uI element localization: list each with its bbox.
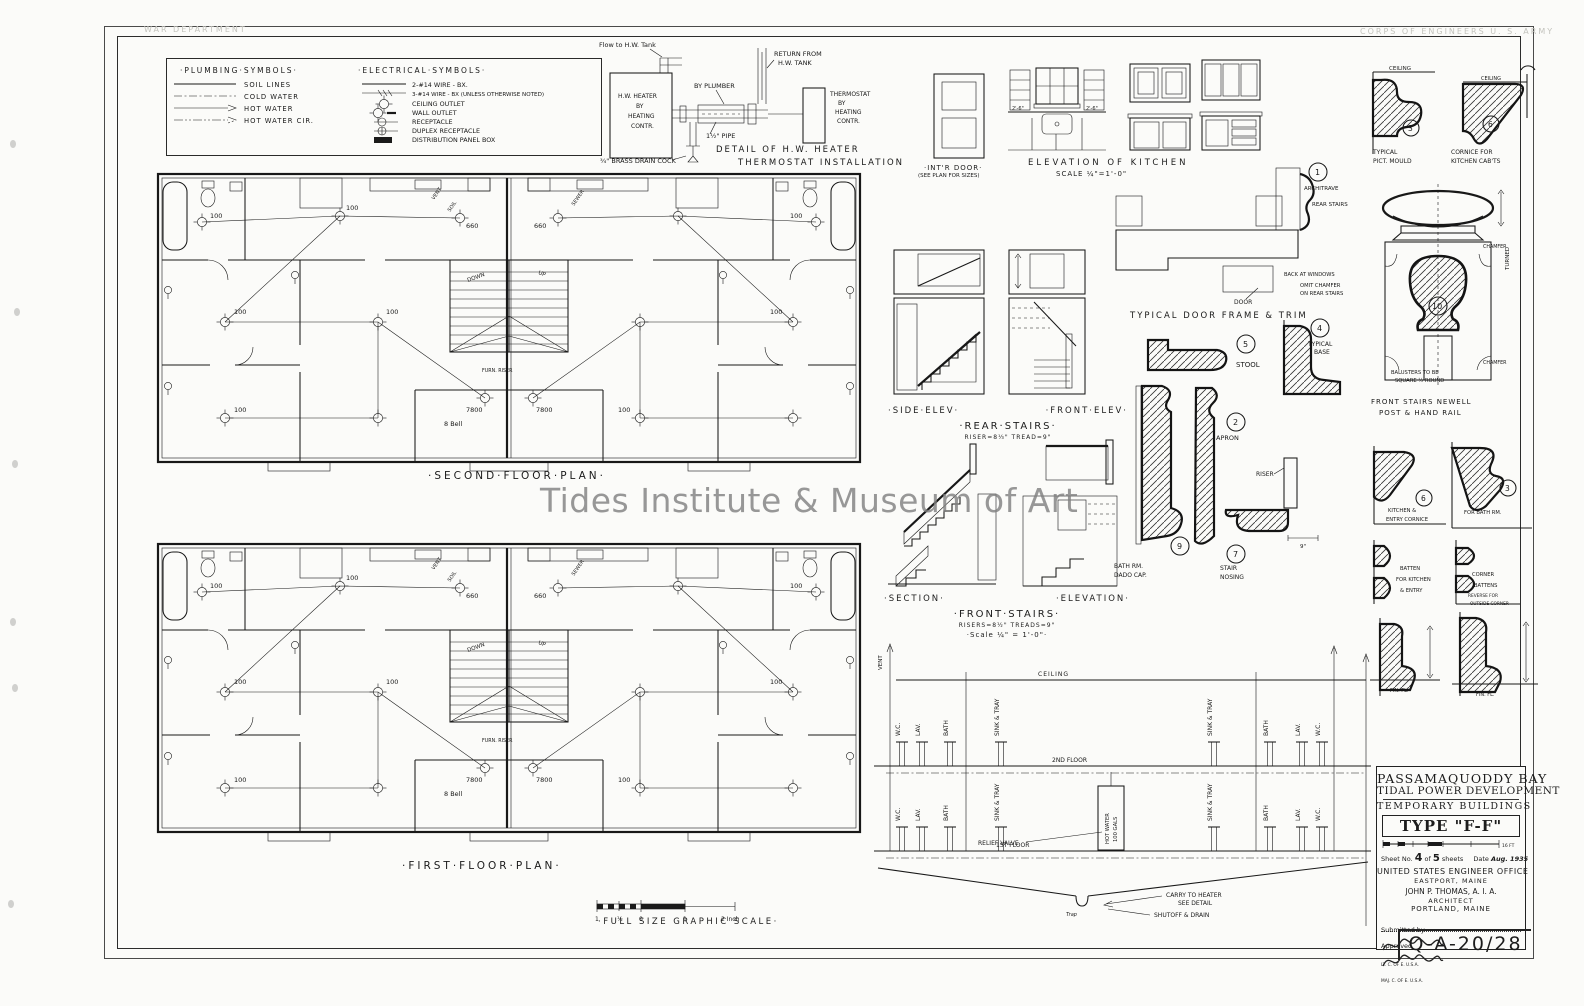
drawing-sheet: WAR DEPARTMENT CORPS OF ENGINEERS U. S. … bbox=[0, 0, 1584, 1006]
outlet-label: 100 bbox=[234, 776, 246, 784]
fixture-label-wc: W.C. bbox=[1315, 808, 1322, 821]
title-block: PASSAMAQUODDY BAY TIDAL POWER DEVELOPMEN… bbox=[1376, 766, 1526, 950]
trap-label: Trap bbox=[1066, 912, 1077, 918]
tank-label-1: HOT WATER bbox=[1105, 813, 1111, 844]
stairs-up-label: UP bbox=[537, 270, 547, 278]
architect-name: JOHN P. THOMAS, A. I. A. bbox=[1377, 887, 1525, 896]
balusters-note-2: SQUARE ½ ROUND bbox=[1395, 377, 1444, 384]
fixture-label-bath: BATH bbox=[1263, 720, 1270, 736]
shutoff-drain-label: SHUTOFF & DRAIN bbox=[1154, 912, 1209, 919]
pict-mould-1: TYPICAL bbox=[1372, 149, 1398, 156]
plumbing-symbols-title: ·PLUMBING·SYMBOLS· bbox=[180, 66, 298, 75]
outlet-label: 100 bbox=[210, 212, 222, 220]
rear-stairs-side-elev bbox=[888, 236, 990, 398]
outlet-label: 7800 bbox=[536, 406, 553, 414]
ceiling-label-cornice: CEILING bbox=[1481, 76, 1501, 82]
pipe-sewer-label: SEWER bbox=[571, 559, 586, 578]
pipe-soil-label: SOIL bbox=[447, 200, 459, 213]
back-at-windows-note: BACK AT WINDOWS bbox=[1284, 272, 1335, 278]
riser-2nd-floor-label: 2ND FLOOR bbox=[1052, 757, 1087, 764]
corner-battens-1: CORNER bbox=[1472, 572, 1494, 578]
fixture-label-bath: BATH bbox=[1263, 805, 1270, 821]
outlet-label: 100 bbox=[234, 406, 246, 414]
mould-details-top: CEILING 3 TYPICAL PICT. MOULD CEILING 6 … bbox=[1363, 58, 1540, 170]
stairs-up-label: UP bbox=[537, 640, 547, 648]
detail-1-number: 1 bbox=[1315, 168, 1320, 177]
thermo-4: CONTR. bbox=[837, 118, 860, 125]
project-name-2: TIDAL POWER DEVELOPMENT bbox=[1377, 785, 1525, 797]
corps-engineers-stamp: CORPS OF ENGINEERS U. S. ARMY bbox=[1360, 27, 1554, 36]
legend-duplex: DUPLEX RECEPTACLE bbox=[412, 127, 480, 135]
date-value: Aug. 1935 bbox=[1491, 855, 1528, 863]
fixture-label-bath: BATH bbox=[943, 720, 950, 736]
office-line-1: UNITED STATES ENGINEER OFFICE bbox=[1377, 867, 1525, 876]
bell-label: 8 Bell bbox=[444, 790, 462, 798]
margin-speck bbox=[8, 900, 14, 908]
outlet-label: 100 bbox=[210, 582, 222, 590]
carry-to-heater-1: CARRY TO HEATER bbox=[1166, 892, 1222, 899]
sheet-code: Q-A-20/28 bbox=[1398, 929, 1531, 960]
outlet-label: 660 bbox=[534, 222, 546, 230]
heater-caption-1: DETAIL OF H.W. HEATER bbox=[716, 145, 860, 155]
riser-vent-label: VENT bbox=[878, 655, 884, 670]
front-stairs-caption: ·FRONT·STAIRS· bbox=[884, 609, 1130, 620]
pipe-soil-label: SOIL bbox=[447, 570, 459, 583]
relief-valve-label: RELIEF VALVE bbox=[978, 840, 1019, 847]
dado-cap-2: DADO CAP. bbox=[1114, 572, 1147, 579]
first-floor-plan-caption: ·FIRST·FLOOR·PLAN· bbox=[402, 860, 562, 872]
fixture-label-lav: LAV. bbox=[1295, 723, 1302, 736]
heater-box-2: BY bbox=[636, 103, 644, 110]
outlet-label: 100 bbox=[790, 582, 802, 590]
detail-3b-number: 3 bbox=[1505, 484, 1510, 493]
tank-label-2: 100 GALS bbox=[1113, 817, 1119, 842]
margin-speck bbox=[12, 684, 18, 692]
rear-stairs-front-elev bbox=[1004, 236, 1092, 398]
architrave-label: ARCHITRAVE bbox=[1304, 186, 1339, 192]
outlet-label: 100 bbox=[386, 678, 398, 686]
stair-nosing-2: NOSING bbox=[1220, 574, 1244, 581]
stool-label: STOOL bbox=[1236, 361, 1260, 369]
office-line-2: EASTPORT, MAINE bbox=[1377, 877, 1525, 885]
subtitle: TEMPORARY BUILDINGS bbox=[1377, 801, 1525, 812]
dado-cap-1: BATH RM. bbox=[1114, 563, 1143, 570]
sheet-label: Sheet No. bbox=[1381, 855, 1413, 863]
batten-3: & ENTRY bbox=[1400, 588, 1423, 594]
second-floor-plan-drawing: 100 100 100 100 100 100 100 100 660 660 … bbox=[150, 160, 868, 472]
titleblock-scale-bar: 16 FT bbox=[1381, 839, 1521, 849]
turned-label: TURNED bbox=[1505, 247, 1511, 271]
door-caption-2: (SEE PLAN FOR SIZES) bbox=[918, 173, 980, 179]
outlet-label: 100 bbox=[618, 406, 630, 414]
furn-riser-label: FURN. RISER bbox=[482, 738, 513, 744]
batten-1: BATTEN bbox=[1400, 566, 1420, 572]
kitchen-dim-left: 2'-6" bbox=[1012, 106, 1024, 112]
approved-rank: MAJ. C. OF E. U.S.A. bbox=[1381, 979, 1423, 984]
detail-2-number: 2 bbox=[1233, 418, 1238, 427]
stairs-down-label: DOWN bbox=[467, 642, 486, 654]
detail-7-number: 7 bbox=[1233, 550, 1238, 559]
chamfer-label-top: CHAMFER bbox=[1483, 244, 1507, 250]
legend-hot-water-cir: HOT WATER CIR. bbox=[244, 117, 314, 125]
stairs-down-label: DOWN bbox=[467, 272, 486, 284]
stair-nosing-1: STAIR bbox=[1220, 565, 1237, 572]
entry-cornice-2: ENTRY CORNICE bbox=[1386, 517, 1428, 523]
sheet-row: Sheet No. 4 of 5 sheets Date Aug. 1935 bbox=[1381, 851, 1521, 864]
margin-speck bbox=[10, 618, 16, 626]
rear-side-elev-caption: ·SIDE·ELEV· bbox=[888, 406, 959, 416]
heater-return-1: RETURN FROM bbox=[774, 50, 822, 58]
type-designation: TYPE "F-F" bbox=[1382, 815, 1520, 837]
front-stairs-detail: ·SECTION· ·ELEVATION· ·FRONT·STAIRS· RIS… bbox=[884, 436, 1130, 639]
outlet-label: 100 bbox=[770, 678, 782, 686]
legend-soil-lines: SOIL LINES bbox=[244, 81, 291, 89]
heater-box-4: CONTR. bbox=[631, 123, 654, 130]
fixture-label-sink: SINK & TRAY bbox=[994, 698, 1001, 736]
pipe-vent-label: VENT bbox=[431, 556, 444, 571]
cornice-batten-details: 6 KITCHEN & ENTRY CORNICE 3 FOR BATH RM.… bbox=[1360, 428, 1540, 720]
margin-speck bbox=[12, 460, 18, 468]
thermo-1: THERMOSTAT bbox=[829, 91, 871, 98]
fixture-label-sink: SINK & TRAY bbox=[1207, 698, 1214, 736]
pipe-vent-label: VENT bbox=[431, 186, 444, 201]
heater-flow-label: Flow to H.W. Tank bbox=[599, 41, 656, 49]
riser-fixture-labels: W.C. LAV. BATH SINK & TRAY SINK & TRAY B… bbox=[895, 698, 1322, 821]
outlet-label: 100 bbox=[386, 308, 398, 316]
project-name-1: PASSAMAQUODDY BAY bbox=[1377, 771, 1525, 786]
omit-chamfer-1: OMIT CHAMFER bbox=[1300, 283, 1341, 289]
outlet-label: 7800 bbox=[466, 776, 483, 784]
legend-hot-water: HOT WATER bbox=[244, 105, 293, 113]
fin-fl-left: FIN. FL. bbox=[1390, 688, 1409, 694]
detail-3-number: 3 bbox=[1408, 124, 1413, 133]
detail-9-number: 9 bbox=[1177, 542, 1182, 551]
corner-battens-4: OUTSIDE CORNER bbox=[1470, 601, 1509, 607]
newel-caption-2: POST & HAND RAIL bbox=[1379, 409, 1462, 417]
sheet-of: of bbox=[1424, 855, 1430, 863]
thermo-2: BY bbox=[838, 100, 846, 107]
watermark: Tides Institute & Museum of Art bbox=[540, 481, 1078, 520]
date-label: Date bbox=[1473, 855, 1489, 863]
detail-4-number: 4 bbox=[1317, 324, 1322, 333]
electrical-symbols-title: ·ELECTRICAL·SYMBOLS· bbox=[358, 66, 486, 75]
carry-to-heater-2: SEE DETAIL bbox=[1178, 900, 1213, 907]
legend-panel-box: DISTRIBUTION PANEL BOX bbox=[412, 136, 496, 144]
fixture-label-sink: SINK & TRAY bbox=[1207, 783, 1214, 821]
outlet-label: 7800 bbox=[536, 776, 553, 784]
outlet-label: 100 bbox=[790, 212, 802, 220]
graphic-scale-caption: ·FULL SIZE GRAPHIC SCALE· bbox=[598, 917, 779, 927]
outlet-label: 100 bbox=[234, 678, 246, 686]
riser-ceiling-label: CEILING bbox=[1038, 671, 1069, 678]
front-section-caption: ·SECTION· bbox=[884, 594, 945, 604]
plumbing-riser-diagram: CEILING 2ND FLOOR 1ST FLOOR VENT W.C. LA… bbox=[866, 636, 1380, 940]
typical-base-2: BASE bbox=[1314, 349, 1330, 356]
thermo-3: HEATING bbox=[835, 109, 862, 116]
chamfer-label-bottom: CHAMFER bbox=[1483, 360, 1507, 366]
ceiling-label-pict: CEILING bbox=[1389, 66, 1411, 72]
kitchen-cornice-2: KITCHEN CAB'TS bbox=[1451, 158, 1501, 165]
rear-stairs-caption: ·REAR·STAIRS· bbox=[888, 421, 1128, 432]
pipe-sewer-label: SEWER bbox=[571, 189, 586, 208]
fixture-label-wc: W.C. bbox=[895, 808, 902, 821]
bell-label: 8 Bell bbox=[444, 420, 462, 428]
newel-post-detail: 10 TURNED CHAMFER CHAMFER BALUSTERS TO B… bbox=[1363, 178, 1515, 423]
corner-battens-2: BATTENS bbox=[1474, 583, 1497, 589]
legend-wire2: 2-#14 WIRE - BX. bbox=[412, 81, 468, 89]
detail-6-number: 6 bbox=[1488, 120, 1493, 129]
omit-chamfer-2: ON REAR STAIRS bbox=[1300, 291, 1343, 297]
kitchen-elevation-cab2 bbox=[1126, 62, 1194, 152]
rear-stairs-note: REAR STAIRS bbox=[1312, 202, 1348, 208]
sheet-total: 5 bbox=[1433, 853, 1440, 864]
legend-cold-water: COLD WATER bbox=[244, 93, 299, 101]
door-caption-1: ·INT'R DOOR· bbox=[924, 164, 982, 172]
fixture-label-lav: LAV. bbox=[1295, 808, 1302, 821]
heater-box-3: HEATING bbox=[628, 113, 655, 120]
outlet-label: 100 bbox=[346, 204, 358, 212]
legend-wire3: 3-#14 WIRE - BX (UNLESS OTHERWISE NOTED) bbox=[412, 92, 544, 98]
heater-box-1: H.W. HEATER bbox=[618, 93, 657, 100]
fixture-label-wc: W.C. bbox=[1315, 723, 1322, 736]
scale-end-label: 16 FT bbox=[1502, 843, 1515, 849]
kitchen-elevation-cab3 bbox=[1200, 58, 1264, 152]
kitchen-dim-right: 2'-6" bbox=[1086, 106, 1098, 112]
outlet-label: 100 bbox=[346, 574, 358, 582]
kitchen-elevation-sink: 2'-6" 2'-6" bbox=[1008, 66, 1106, 154]
outlet-label: 100 bbox=[770, 308, 782, 316]
outlet-label: 100 bbox=[234, 308, 246, 316]
legend-wall-outlet: WALL OUTLET bbox=[412, 109, 457, 117]
furn-riser-label: FURN. RISER bbox=[482, 368, 513, 374]
fixture-label-sink: SINK & TRAY bbox=[994, 783, 1001, 821]
symbols-legend: ·PLUMBING·SYMBOLS· SOIL LINES COLD WATER… bbox=[166, 58, 602, 156]
margin-speck bbox=[10, 140, 16, 148]
newel-caption-1: FRONT STAIRS NEWELL bbox=[1371, 398, 1472, 406]
batten-2: FOR KITCHEN bbox=[1396, 577, 1431, 583]
typical-base-1: TYPICAL bbox=[1307, 341, 1333, 348]
fixture-label-wc: W.C. bbox=[895, 723, 902, 736]
detail-5-number: 5 bbox=[1243, 340, 1248, 349]
entry-cornice-1: KITCHEN & bbox=[1388, 508, 1416, 514]
outlet-label: 660 bbox=[534, 592, 546, 600]
legend-receptacle: RECEPTACLE bbox=[412, 118, 453, 126]
trim-details: 1 ARCHITRAVE REAR STAIRS BACK AT WINDOWS… bbox=[1108, 158, 1360, 628]
outlet-label: 660 bbox=[466, 222, 478, 230]
door-label: DOOR bbox=[1234, 299, 1252, 306]
outlet-label: 100 bbox=[618, 776, 630, 784]
legend-ceiling-outlet: CEILING OUTLET bbox=[412, 100, 465, 108]
first-floor-plan-drawing: 100 100 100 100 100 100 100 100 660 660 … bbox=[150, 530, 868, 842]
outlet-label: 7800 bbox=[466, 406, 483, 414]
apron-label: APRON bbox=[1216, 434, 1239, 442]
fixture-label-lav: LAV. bbox=[915, 723, 922, 736]
fixture-label-lav: LAV. bbox=[915, 808, 922, 821]
architect-title: ARCHITECT bbox=[1377, 897, 1525, 905]
heater-detail: H.W. HEATER BY HEATING CONTR. Flow to H.… bbox=[598, 38, 880, 178]
heater-plumber-label: BY PLUMBER bbox=[694, 82, 735, 90]
sheet-number: 4 bbox=[1415, 851, 1423, 864]
margin-speck bbox=[14, 308, 20, 316]
rear-stairs-detail: ·SIDE·ELEV· ·FRONT·ELEV· ·REAR·STAIRS· R… bbox=[888, 236, 1128, 441]
bath-cornice-label: FOR BATH RM. bbox=[1464, 510, 1502, 516]
balusters-note-1: BALUSTERS TO BE bbox=[1391, 370, 1439, 376]
sheet-suffix: sheets bbox=[1442, 855, 1463, 863]
pict-mould-2: PICT. MOULD bbox=[1373, 158, 1412, 165]
front-stairs-riser-note: RISERS=8½" TREADS=9" bbox=[884, 622, 1130, 629]
corner-battens-3: REVERSE FOR bbox=[1468, 593, 1498, 599]
nine-inch-dim: 9" bbox=[1300, 544, 1306, 550]
divider bbox=[1383, 799, 1519, 800]
detail-6b-number: 6 bbox=[1421, 494, 1426, 503]
door-frame-trim-caption: TYPICAL DOOR FRAME & TRIM bbox=[1129, 311, 1308, 321]
riser-label: RISER bbox=[1256, 471, 1274, 478]
fixture-label-bath: BATH bbox=[943, 805, 950, 821]
architect-city: PORTLAND, MAINE bbox=[1377, 905, 1525, 913]
detail-10-number: 10 bbox=[1432, 302, 1442, 311]
fin-fl-right: FIN. FL. bbox=[1476, 692, 1495, 698]
interior-door-elevation bbox=[930, 70, 988, 162]
war-department-stamp: WAR DEPARTMENT bbox=[144, 25, 247, 34]
outlet-label: 660 bbox=[466, 592, 478, 600]
kitchen-cornice-1: CORNICE FOR bbox=[1451, 149, 1493, 156]
heater-return-2: H.W. TANK bbox=[778, 59, 812, 67]
